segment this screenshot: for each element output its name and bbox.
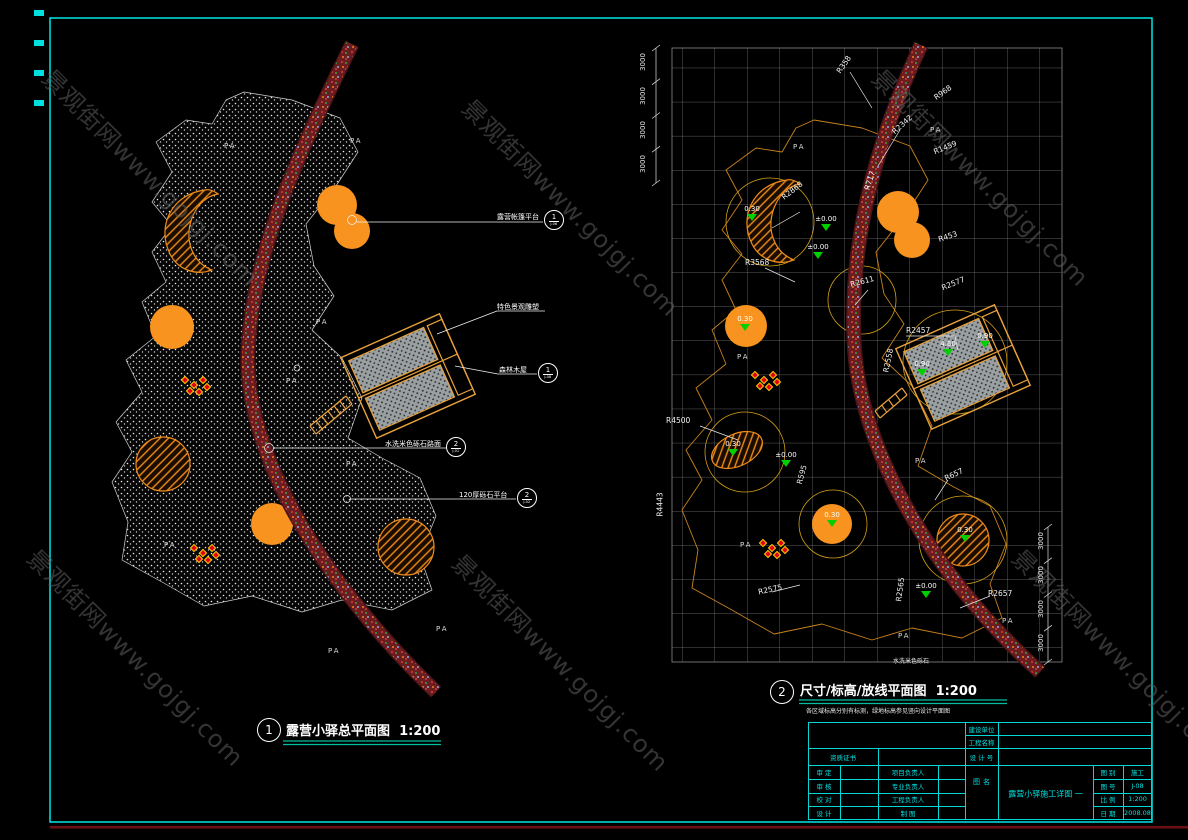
- pa-label: PA: [793, 143, 806, 151]
- plan2-note: 各区域标高分别有标测，绿地标高参见竖向设计平面图: [806, 706, 950, 715]
- dim-3000: 3000: [639, 53, 647, 71]
- sign-label: 设 计: [816, 808, 831, 818]
- detail-bubble: 1 J-06: [544, 210, 564, 230]
- figname-label: 图 名: [972, 778, 992, 806]
- meta-label: 图 别: [1100, 767, 1115, 777]
- dim-3000: 3000: [1037, 566, 1045, 584]
- detail-bubble: 1 J-08: [538, 363, 558, 383]
- elevation-triangle-icon: [813, 252, 823, 259]
- role-label: 工程负责人: [892, 794, 925, 804]
- elevation-triangle-icon: [980, 341, 990, 348]
- meta-value: 施工: [1131, 767, 1144, 777]
- callout-tent-label: 露营帐篷平台: [497, 212, 539, 222]
- pa-label: PA: [286, 377, 299, 385]
- cert-label: 资质证书: [830, 752, 856, 762]
- elevation-marker: 0.30: [732, 205, 772, 221]
- meta-value: 2008.08: [1124, 809, 1151, 817]
- margin-tick: [34, 70, 44, 76]
- meta-value: 1:200: [1128, 795, 1147, 803]
- project-label: 工程名称: [969, 737, 995, 747]
- radius-label: R4500: [666, 416, 690, 425]
- plan1-graphics: [112, 44, 545, 745]
- elevation-marker: 0.30: [812, 511, 852, 527]
- margin-tick: [34, 10, 44, 16]
- pa-label: PA: [930, 126, 943, 134]
- plan2-graphics: [652, 45, 1062, 704]
- title-block: 建设单位 工程名称 资质证书 设 计 号 审 定 审 核 校 对 设 计 项目负…: [808, 722, 1152, 820]
- pa-label: PA: [164, 541, 177, 549]
- pa-label: PA: [898, 632, 911, 640]
- pa-label: PA: [350, 137, 363, 145]
- elevation-triangle-icon: [740, 324, 750, 331]
- dim-3000: 3000: [639, 87, 647, 105]
- dim-3000: 3000: [639, 121, 647, 139]
- pa-label: PA: [737, 353, 750, 361]
- plan1-number-bubble: 1: [257, 718, 281, 742]
- radius-label: R3568: [745, 258, 769, 267]
- elevation-triangle-icon: [728, 449, 738, 456]
- sign-label: 审 定: [816, 767, 831, 777]
- callout-gravel-label: 水洗米色砾石路面: [385, 439, 441, 449]
- role-label: 制 图: [900, 808, 915, 818]
- meta-label: 图 号: [1100, 781, 1115, 791]
- elevation-marker: 0.30: [713, 440, 753, 456]
- margin-tick: [34, 40, 44, 46]
- plan1-title: 露营小驿总平面图 1:200: [286, 720, 440, 739]
- dim-3000: 3000: [1037, 532, 1045, 550]
- pa-label: PA: [346, 460, 359, 468]
- radius-label: R4443: [656, 492, 665, 516]
- elevation-marker: 4.60: [928, 340, 968, 356]
- elevation-marker: 0.30: [725, 315, 765, 331]
- pa-label: PA: [436, 625, 449, 633]
- elevation-marker: ±0.00: [798, 243, 838, 259]
- role-label: 项目负责人: [892, 767, 925, 777]
- plan2-title: 尺寸/标高/放线平面图 1:200: [800, 680, 977, 699]
- client-label: 建设单位: [969, 724, 995, 734]
- pa-label: PA: [740, 541, 753, 549]
- elevation-triangle-icon: [747, 214, 757, 221]
- meta-value: J-08: [1131, 782, 1143, 790]
- elevation-triangle-icon: [943, 349, 953, 356]
- elevation-marker: ±0.00: [766, 451, 806, 467]
- elevation-marker: 0.90: [965, 332, 1005, 348]
- dim-3000: 3000: [1037, 600, 1045, 618]
- elevation-triangle-icon: [960, 535, 970, 542]
- elevation-marker: 0.30: [945, 526, 985, 542]
- elevation-marker: ±0.00: [806, 215, 846, 231]
- pa-label: PA: [1002, 617, 1015, 625]
- elevation-triangle-icon: [821, 224, 831, 231]
- detail-bubble: 2 J-02: [517, 488, 537, 508]
- pa-label: PA: [224, 142, 237, 150]
- callout-cabin-label: 森林木屋: [499, 365, 527, 375]
- sign-label: 校 对: [816, 794, 831, 804]
- meta-label: 比 例: [1100, 794, 1115, 804]
- callout-platform-label: 120厚砾石平台: [459, 490, 507, 500]
- design-no-label: 设 计 号: [970, 752, 994, 762]
- pa-label: PA: [316, 318, 329, 326]
- detail-bubble: 2 J-01: [446, 437, 466, 457]
- margin-tick: [34, 100, 44, 106]
- elevation-marker: 0.90: [902, 360, 942, 376]
- elevation-triangle-icon: [827, 520, 837, 527]
- role-label: 专业负责人: [892, 781, 925, 791]
- radius-label: R2657: [988, 589, 1012, 598]
- plan2-number-bubble: 2: [770, 680, 794, 704]
- callout-sculpture-label: 特色景观雕塑: [497, 302, 539, 312]
- radius-label: R2457: [906, 326, 930, 335]
- meta-label: 日 期: [1100, 808, 1115, 818]
- pa-label: PA: [915, 457, 928, 465]
- elevation-triangle-icon: [781, 460, 791, 467]
- dim-3000: 3000: [1037, 634, 1045, 652]
- pa-label: PA: [328, 647, 341, 655]
- gravel-note: 水洗米色砾石: [893, 656, 929, 665]
- elevation-triangle-icon: [917, 369, 927, 376]
- sign-label: 审 核: [816, 781, 831, 791]
- drawing-canvas: [0, 0, 1188, 840]
- drawing-name: 露营小驿施工详图 一: [1008, 789, 1083, 800]
- elevation-marker: ±0.00: [906, 582, 946, 598]
- sheet-bottom-line: [50, 826, 1188, 829]
- dim-3000: 3000: [639, 155, 647, 173]
- elevation-triangle-icon: [921, 591, 931, 598]
- cad-sheet: 景观街网www.gojgj.com 景观街网www.gojgj.com 景观街网…: [0, 0, 1188, 840]
